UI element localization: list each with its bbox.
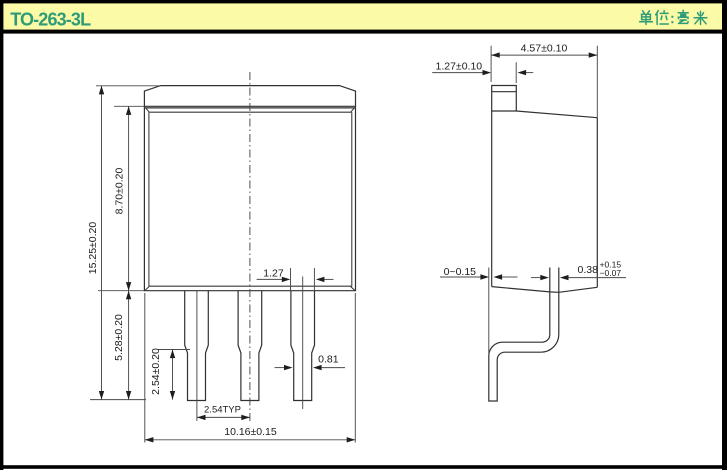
svg-text:1.27±0.10: 1.27±0.10 xyxy=(436,61,483,73)
svg-text:8.70±0.20: 8.70±0.20 xyxy=(114,168,126,215)
svg-text:2.54±0.20: 2.54±0.20 xyxy=(150,348,162,395)
svg-text:−0.07: −0.07 xyxy=(600,268,622,278)
svg-text:TO-263-3L: TO-263-3L xyxy=(10,9,91,29)
svg-text:0.38: 0.38 xyxy=(578,264,599,276)
svg-text:10.16±0.15: 10.16±0.15 xyxy=(224,426,277,438)
svg-text:4.57±0.10: 4.57±0.10 xyxy=(521,43,568,55)
svg-text:0~0.15: 0~0.15 xyxy=(444,266,477,278)
svg-text:15.25±0.20: 15.25±0.20 xyxy=(87,222,99,275)
svg-text:5.28±0.20: 5.28±0.20 xyxy=(113,314,125,361)
svg-text:2.54TYP: 2.54TYP xyxy=(204,404,241,415)
svg-text:1.27: 1.27 xyxy=(263,268,284,280)
svg-text:0.81: 0.81 xyxy=(318,354,339,366)
